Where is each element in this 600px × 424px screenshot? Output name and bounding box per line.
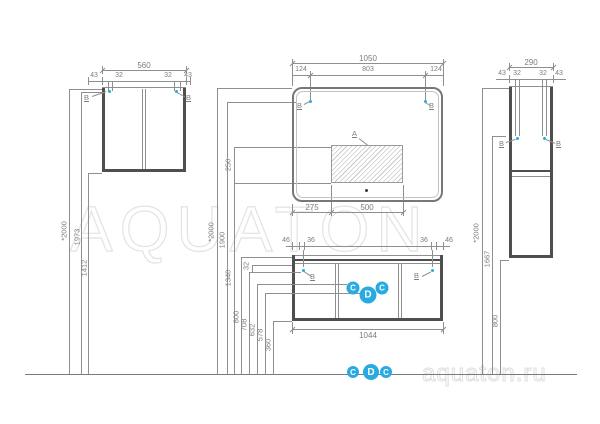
tall-cabinet-width-label: 290 [524,58,537,67]
dim-line [500,260,501,374]
left-cabinet-offset-label: 32 [164,72,172,79]
tall-cabinet-side-panel [509,86,512,258]
extension-line [265,293,360,294]
zone-label-a: A [352,129,357,138]
tall-cabinet-offset-label: 32 [513,70,521,77]
floor-point-d: D [363,364,379,380]
left-cabinet-offset-label: 43 [90,72,98,79]
vanity-door-gap [401,263,402,318]
extension-line [299,242,300,250]
extension-line [227,102,296,103]
connection-point-c: C [376,282,389,295]
left-cabinet-offset-label: 43 [184,72,192,79]
extension-line [515,79,516,136]
dim-line [292,63,443,64]
dim-line [241,257,242,374]
tall-cabinet-bottom-panel [509,255,553,258]
extension-line [241,257,292,258]
vanity-top-edge [292,255,443,256]
extension-line [88,77,89,85]
vanity-door-gap [398,263,399,318]
mount-label-b: B [499,139,504,148]
vanity-countertop [292,259,443,261]
mirror-offset-label: 803 [362,66,374,73]
left-height-mount: 1973 [73,229,82,246]
tall-cabinet-offset-label: 32 [539,70,547,77]
vanity-offset-label: 46 [282,237,290,244]
left-cabinet-side-panel [102,87,105,172]
mount-label-b: B [310,272,315,281]
dim-line [292,212,403,213]
mount-point-dot [309,100,312,103]
vanity-offset-label: 36 [420,237,428,244]
vanity-side-panel [440,255,443,318]
extension-line [69,89,102,90]
left-cabinet-door-gap [142,89,143,169]
dim-line [102,70,186,71]
mirror-width-label: 1050 [359,54,377,63]
touch-sensor-dot [365,189,368,192]
extension-line [542,79,543,136]
vanity-band-edge [292,263,443,264]
extension-line [500,260,509,261]
mount-point-dot [516,137,519,140]
floor-point-c: C [380,366,392,378]
connection-point-d: D [360,287,377,304]
dim-line [252,265,253,273]
left-cabinet-door-gap [145,89,146,169]
extension-line [273,321,292,322]
mount-label-b: B [556,139,561,148]
extension-line [304,242,305,250]
mount-point-dot [543,137,546,140]
dim-line [265,293,266,374]
dim-line [492,136,493,374]
mirror-bottom-offset-label: 500 [360,203,373,212]
dim-line [286,246,450,247]
floor-point-c: C [347,366,359,378]
mount-point-dot [424,100,427,103]
dim-line [234,147,235,374]
extension-line [88,173,102,174]
mirror-height-overall: *2000 [207,222,216,242]
extension-line [303,250,304,267]
mount-point-dot [175,90,178,93]
extension-line [436,242,437,250]
mirror-bottom-offset-label: 275 [305,203,318,212]
extension-line [217,88,292,89]
tall-cabinet-door-edge [512,176,550,177]
vanity-offset-label: 46 [445,237,453,244]
extension-line [443,242,444,250]
mount-label-b: B [297,101,302,110]
mirror-height-mount: 1900 [218,232,227,249]
tall-cabinet-offset-label: 43 [555,70,563,77]
extension-line [509,75,510,83]
vanity-bottom-height-label: 360 [264,339,273,352]
connection-point-c: C [347,282,360,295]
tall-cabinet-offset-label: 43 [498,70,506,77]
extension-line [292,242,293,250]
extension-line [553,75,554,83]
extension-line [546,79,547,136]
dim-line [509,67,553,68]
vanity-door-gap [338,263,339,318]
dim-line [482,88,483,374]
left-height-bottom: 1412 [80,260,89,277]
extension-line [432,250,433,267]
tall-height-overall: *2000 [472,223,481,243]
dim-line [273,321,274,374]
vanity-offset-label: 36 [307,237,315,244]
mirror-offset-label: 124 [295,66,307,73]
dim-line [496,79,566,80]
extension-line [252,265,292,266]
extension-line [102,77,103,85]
vanity-door-gap [335,263,336,318]
tall-cabinet-side-panel [550,86,553,258]
dim-line [292,329,443,330]
mount-label-b: B [186,93,191,102]
extension-line [249,272,301,273]
vanity-bottom-panel [292,318,443,321]
left-cabinet-offset-label: 32 [115,72,123,79]
mirror-offset-label: 124 [430,66,442,73]
extension-line [492,136,506,137]
tall-height-mount: 1667 [483,251,492,268]
dim-line [292,75,443,76]
left-height-overall: *2000 [60,221,69,241]
zone-bottom-height-label: 1340 [224,270,233,287]
dim-line [227,102,228,374]
vanity-width-label: 1044 [359,331,377,340]
extension-line [519,79,520,136]
tall-height-bottom: 800 [491,315,500,328]
zone-height-label: 250 [224,159,233,172]
floor-line [25,374,577,375]
left-cabinet-bottom-panel [102,169,186,172]
extension-line [431,242,432,250]
tall-cabinet-shelf-edge [512,170,550,172]
left-cabinet-width-label: 560 [137,61,150,70]
extension-line [257,284,347,285]
mirror-lit-zone [331,145,403,183]
mount-label-b: B [84,93,89,102]
extension-line [180,81,181,91]
extension-line [482,88,509,89]
mount-label-b: B [429,101,434,110]
vanity-gap-label: 32 [242,262,251,270]
mount-point-dot [108,90,111,93]
mount-label-b: B [414,271,419,280]
leader-line [422,272,431,277]
mount-point-dot [302,269,305,272]
dim-line [69,89,70,374]
vanity-side-panel [292,255,295,318]
installation-diagram: AQUATON aquaton.ru 560 43 32 32 43 B B *… [0,0,600,424]
mount-point-dot [431,269,434,272]
extension-line [112,81,113,91]
